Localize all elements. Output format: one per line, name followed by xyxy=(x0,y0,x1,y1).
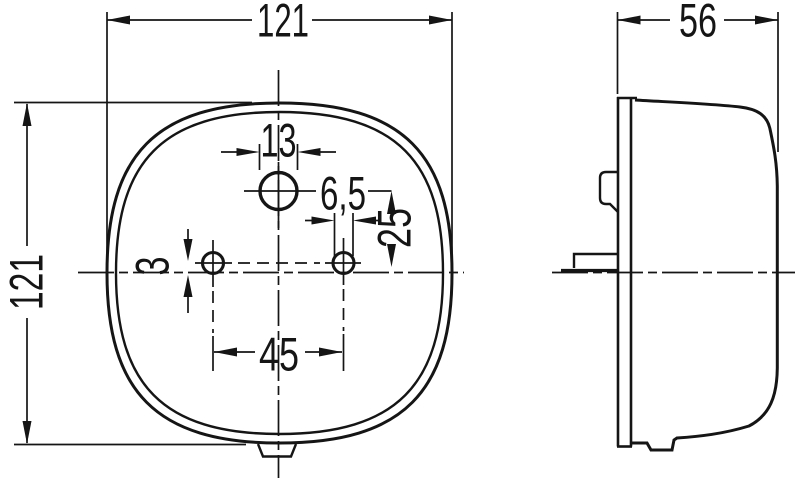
dimension-center-hole: 13 xyxy=(221,114,336,171)
arrowhead-left xyxy=(237,148,260,156)
lamp-dimension-drawing: 121 121 13 6,5 25 xyxy=(0,0,800,485)
front-bottom-tab xyxy=(258,444,296,457)
arrowhead-left xyxy=(618,16,641,25)
arrowhead-right xyxy=(755,16,778,25)
dim-front-width: 121 xyxy=(257,0,309,47)
arrowhead-down xyxy=(184,239,193,261)
dimension-hole-spacing: 45 xyxy=(214,328,342,381)
side-mounting-stud xyxy=(574,254,618,268)
dim-front-height: 121 xyxy=(0,254,53,310)
dimension-centerline-offset: 3 xyxy=(126,229,193,313)
dim-centerline-offset: 3 xyxy=(126,257,179,276)
arrowhead-top xyxy=(23,103,32,126)
arrowhead-bottom xyxy=(23,421,32,444)
side-view xyxy=(552,97,795,450)
technical-drawing-page: 121 121 13 6,5 25 xyxy=(0,0,800,485)
dim-hole-spacing: 45 xyxy=(259,328,299,381)
dimension-depth: 56 xyxy=(618,0,779,152)
side-upper-tab xyxy=(600,172,618,212)
dim-mounting-hole-diameter: 6,5 xyxy=(320,167,366,220)
arrowhead-right xyxy=(319,348,342,357)
dimension-vertical-offset: 25 xyxy=(368,191,421,267)
dim-side-depth: 56 xyxy=(679,0,717,47)
arrowhead-left xyxy=(214,348,237,357)
dim-vertical-offset: 25 xyxy=(368,208,421,248)
arrowhead-left xyxy=(107,16,130,25)
arrowhead-up xyxy=(184,275,193,297)
arrowhead-right xyxy=(429,16,452,25)
arrowhead-right xyxy=(298,148,321,156)
side-lens-outline xyxy=(632,100,777,450)
dim-center-hole-diameter: 13 xyxy=(261,114,297,167)
